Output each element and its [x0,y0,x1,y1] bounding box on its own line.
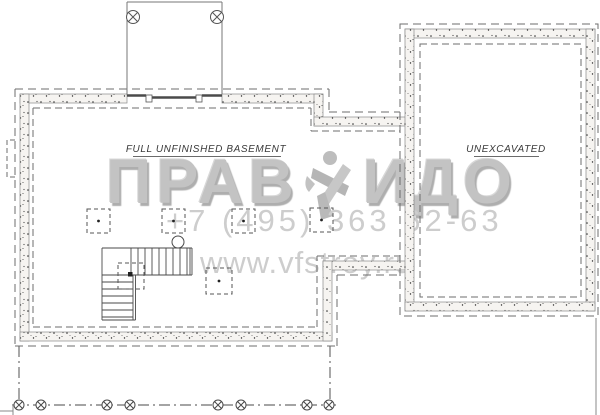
floor-plan-sheet: ПРАВ ИДО +7 (495) 363 62-63 www.vfstroy.… [0,0,600,415]
stoop-beam-detail [127,95,222,102]
column-footings [87,208,333,294]
chimney-footing [7,140,15,177]
basement-label: FULL UNFINISHED BASEMENT [126,144,287,155]
room-labels: FULL UNFINISHED BASEMENT UNEXCAVATED [126,144,546,157]
footing-outline-inner [33,44,581,327]
unexcavated-label: UNEXCAVATED [466,144,546,155]
top-stoop-posts [127,11,224,24]
staircase [102,248,192,320]
top-stoop-outline [127,2,222,94]
deck-outline [12,346,336,405]
foundation-walls [20,29,595,341]
basement-plan-drawing: FULL UNFINISHED BASEMENT UNEXCAVATED [0,0,600,415]
support-column [172,236,184,248]
